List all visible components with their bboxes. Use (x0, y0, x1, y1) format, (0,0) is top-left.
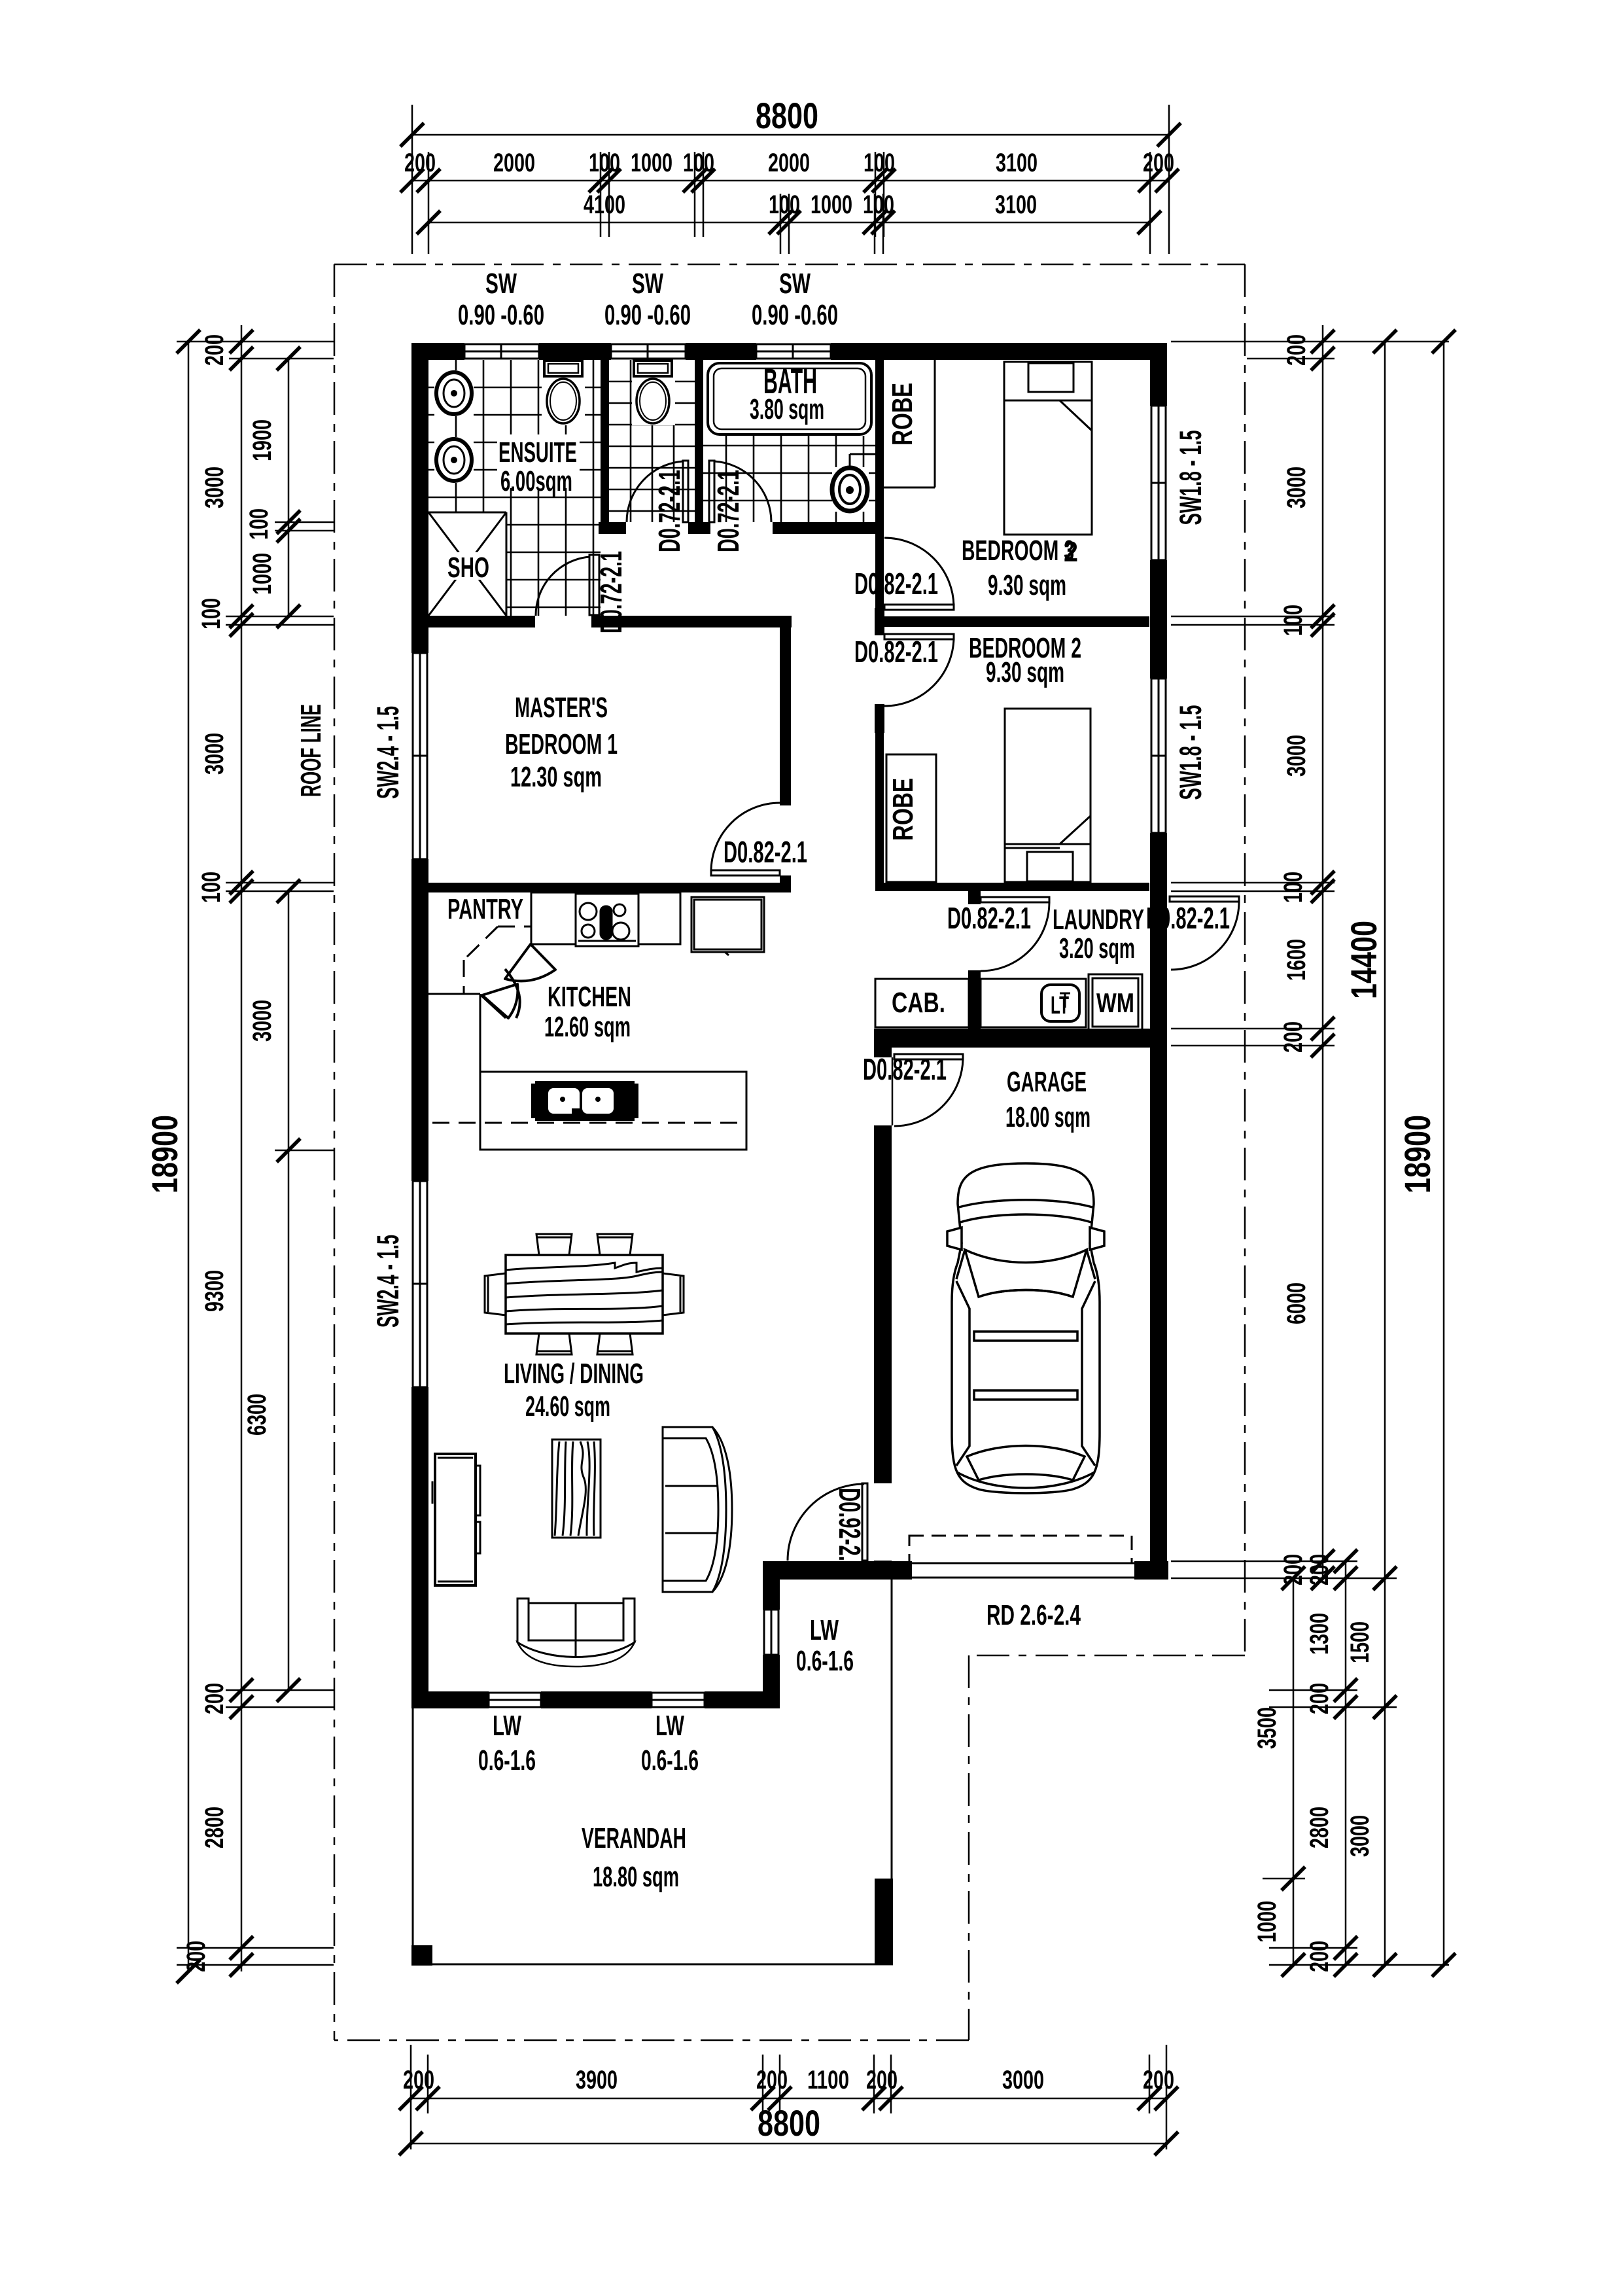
svg-text:200: 200 (182, 1941, 211, 1972)
svg-text:ROBE: ROBE (887, 778, 919, 841)
svg-text:3900: 3900 (576, 2066, 618, 2094)
svg-text:D0.82-2.1: D0.82-2.1 (947, 901, 1031, 935)
svg-text:100: 100 (1279, 872, 1308, 903)
svg-text:3100: 3100 (995, 190, 1037, 219)
svg-text:1300: 1300 (1305, 1613, 1334, 1655)
svg-text:100: 100 (1279, 605, 1308, 636)
svg-text:200: 200 (404, 149, 436, 177)
svg-text:8800: 8800 (758, 2102, 820, 2144)
svg-text:200: 200 (200, 334, 229, 366)
svg-text:3000: 3000 (1002, 2066, 1044, 2094)
svg-text:SW1.8 - 1.5: SW1.8 - 1.5 (1173, 705, 1208, 800)
svg-text:200: 200 (756, 2066, 788, 2094)
svg-text:18.80 sqm: 18.80 sqm (593, 1861, 679, 1893)
svg-text:D0.82-2.1: D0.82-2.1 (854, 567, 938, 601)
svg-text:3000: 3000 (200, 467, 229, 508)
svg-text:3100: 3100 (996, 149, 1038, 177)
svg-text:200: 200 (1305, 1941, 1334, 1972)
svg-text:LW: LW (493, 1710, 521, 1742)
svg-text:100: 100 (769, 190, 800, 219)
svg-text:6.00sqm: 6.00sqm (500, 465, 572, 497)
svg-text:12.30 sqm: 12.30 sqm (510, 761, 602, 793)
svg-text:200: 200 (866, 2066, 898, 2094)
svg-text:14400: 14400 (1343, 921, 1384, 999)
svg-text:LAUNDRY: LAUNDRY (1053, 904, 1144, 936)
svg-text:3000: 3000 (1282, 467, 1311, 508)
svg-text:0.90 -0.60: 0.90 -0.60 (752, 299, 838, 331)
svg-text:3000: 3000 (248, 1000, 277, 1042)
svg-text:3000: 3000 (1282, 735, 1311, 777)
svg-text:0.6-1.6: 0.6-1.6 (641, 1744, 699, 1776)
svg-text:ROBE: ROBE (886, 383, 918, 446)
svg-text:200: 200 (1305, 1683, 1334, 1714)
svg-text:3000: 3000 (200, 733, 229, 775)
svg-text:6300: 6300 (243, 1394, 271, 1436)
svg-text:1000: 1000 (631, 149, 672, 177)
svg-text:LW: LW (655, 1710, 684, 1742)
svg-text:6000: 6000 (1282, 1282, 1311, 1324)
svg-text:3.20 sqm: 3.20 sqm (1059, 932, 1135, 964)
svg-text:100: 100 (245, 508, 273, 540)
svg-text:2000: 2000 (768, 149, 810, 177)
svg-text:D0.82-2.1: D0.82-2.1 (724, 835, 807, 869)
svg-text:1900: 1900 (248, 419, 277, 461)
svg-text:0.90 -0.60: 0.90 -0.60 (604, 299, 691, 331)
svg-text:200: 200 (1143, 2066, 1174, 2094)
svg-text:100: 100 (683, 149, 714, 177)
svg-text:3500: 3500 (1253, 1707, 1282, 1749)
svg-text:0.6-1.6: 0.6-1.6 (478, 1744, 536, 1776)
svg-text:LW: LW (810, 1614, 839, 1646)
svg-text:BEDROOM 3: BEDROOM 3 (962, 535, 1074, 567)
svg-text:SW: SW (485, 268, 517, 300)
svg-text:100: 100 (863, 190, 894, 219)
svg-text:200: 200 (403, 2066, 434, 2094)
svg-text:SW: SW (779, 268, 811, 300)
svg-text:100: 100 (197, 872, 226, 903)
svg-text:3000: 3000 (1346, 1815, 1374, 1857)
svg-text:9.30 sqm: 9.30 sqm (988, 569, 1066, 601)
svg-text:1000: 1000 (811, 190, 852, 219)
svg-text:1600: 1600 (1282, 939, 1311, 981)
svg-text:SW: SW (632, 268, 663, 300)
svg-text:12.60 sqm: 12.60 sqm (544, 1011, 631, 1043)
svg-text:ENSUITE: ENSUITE (498, 436, 577, 468)
svg-text:2000: 2000 (493, 149, 535, 177)
svg-text:3.80 sqm: 3.80 sqm (750, 393, 824, 425)
svg-text:MASTER'S: MASTER'S (515, 692, 608, 724)
svg-text:24.60 sqm: 24.60 sqm (525, 1390, 610, 1422)
svg-text:200: 200 (1143, 149, 1174, 177)
svg-text:D0.82-2.1: D0.82-2.1 (1146, 901, 1230, 935)
svg-text:9.30 sqm: 9.30 sqm (986, 656, 1064, 688)
svg-text:4100: 4100 (584, 190, 625, 219)
svg-text:RD 2.6-2.4: RD 2.6-2.4 (986, 1599, 1081, 1631)
svg-text:1500: 1500 (1346, 1621, 1374, 1663)
svg-text:100: 100 (589, 149, 620, 177)
svg-text:SW2.4 - 1.5: SW2.4 - 1.5 (370, 1235, 405, 1328)
svg-text:2800: 2800 (200, 1807, 229, 1848)
svg-text:18900: 18900 (144, 1115, 185, 1193)
svg-text:100: 100 (197, 598, 226, 629)
svg-text:18.00 sqm: 18.00 sqm (1005, 1101, 1091, 1133)
svg-text:200: 200 (200, 1683, 229, 1714)
svg-text:18900: 18900 (1397, 1115, 1438, 1193)
svg-text:D0.72-2.1: D0.72-2.1 (711, 470, 745, 552)
svg-text:1100: 1100 (807, 2066, 849, 2094)
svg-text:8800: 8800 (756, 95, 818, 136)
svg-text:0.6-1.6: 0.6-1.6 (796, 1645, 854, 1677)
svg-text:LIVING / DINING: LIVING / DINING (504, 1358, 644, 1390)
svg-text:SHO: SHO (447, 552, 489, 584)
svg-text:SW1.8 - 1.5: SW1.8 - 1.5 (1173, 431, 1208, 525)
svg-text:CAB.: CAB. (892, 987, 945, 1019)
svg-text:VERANDAH: VERANDAH (582, 1822, 686, 1854)
svg-text:200: 200 (1279, 1021, 1308, 1053)
svg-text:200: 200 (1282, 334, 1311, 366)
svg-text:D0.82-2.1: D0.82-2.1 (863, 1052, 947, 1086)
svg-text:LT: LT (1051, 992, 1069, 1019)
svg-text:D0.92-2.1: D0.92-2.1 (833, 1488, 867, 1572)
svg-text:WM: WM (1096, 987, 1134, 1018)
svg-text:0.90 -0.60: 0.90 -0.60 (458, 299, 544, 331)
svg-text:9300: 9300 (200, 1270, 229, 1312)
svg-text:ROOF LINE: ROOF LINE (295, 704, 327, 797)
svg-text:2800: 2800 (1305, 1807, 1334, 1848)
svg-text:BEDROOM 1: BEDROOM 1 (505, 728, 618, 760)
svg-text:PANTRY: PANTRY (447, 893, 523, 925)
svg-text:D0.72-2.1: D0.72-2.1 (594, 551, 628, 633)
svg-text:D0.82-2.1: D0.82-2.1 (854, 635, 938, 669)
svg-text:2: 2 (1064, 536, 1078, 568)
svg-text:KITCHEN: KITCHEN (548, 981, 631, 1013)
svg-text:SW2.4 - 1.5: SW2.4 - 1.5 (370, 706, 405, 799)
svg-text:200: 200 (1305, 1554, 1334, 1585)
svg-text:1000: 1000 (1253, 1901, 1282, 1943)
svg-text:1000: 1000 (248, 553, 277, 595)
svg-text:100: 100 (864, 149, 895, 177)
svg-text:GARAGE: GARAGE (1007, 1066, 1087, 1098)
